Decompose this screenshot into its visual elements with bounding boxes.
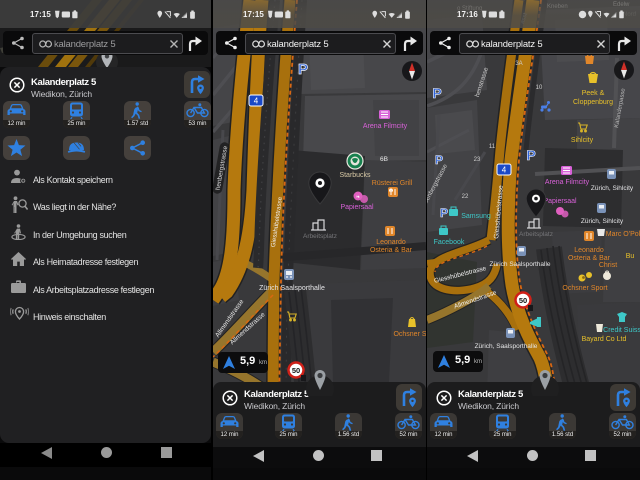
svg-text:Papiersaal: Papiersaal [543, 198, 577, 205]
svg-text:Christ: Christ [599, 262, 617, 269]
svg-text:11: 11 [489, 144, 496, 150]
svg-text:6B: 6B [380, 156, 388, 163]
svg-text:Facebook: Facebook [434, 239, 465, 246]
svg-text:50: 50 [292, 366, 300, 375]
svg-text:Marc O'Pol: Marc O'Pol [606, 231, 640, 238]
svg-text:Ochsner S: Ochsner S [393, 331, 426, 338]
svg-text:Zürich, Sihlcity: Zürich, Sihlcity [591, 185, 634, 192]
svg-text:4: 4 [254, 97, 259, 106]
svg-text:P: P [432, 85, 441, 101]
svg-text:Rüsterei Grill: Rüsterei Grill [372, 180, 413, 187]
svg-text:4: 4 [502, 166, 507, 175]
svg-text:Peek &: Peek & [582, 90, 605, 97]
svg-text:P: P [440, 206, 448, 220]
svg-text:Papiersaal: Papiersaal [340, 204, 374, 211]
svg-text:Cloppenburg: Cloppenburg [573, 99, 613, 106]
svg-text:P: P [435, 153, 443, 167]
svg-text:Osteria & Bar: Osteria & Bar [370, 247, 413, 254]
svg-text:Credit Suisse: Credit Suisse [603, 327, 640, 334]
svg-text:22: 22 [462, 194, 469, 200]
svg-text:23: 23 [474, 157, 481, 163]
svg-text:Arena Filmcity: Arena Filmcity [545, 179, 590, 186]
svg-text:Bayard Co Ltd: Bayard Co Ltd [582, 336, 627, 343]
svg-text:Starbucks: Starbucks [339, 172, 371, 179]
svg-text:Bu: Bu [626, 253, 635, 260]
svg-text:Arbeitsplatz: Arbeitsplatz [303, 233, 337, 240]
svg-text:Zürich Saalsporthalle: Zürich Saalsporthalle [489, 261, 550, 268]
svg-text:Sihlcity: Sihlcity [571, 137, 594, 144]
svg-text:P: P [298, 61, 308, 78]
svg-text:Zürich, Sihlcity: Zürich, Sihlcity [581, 218, 624, 225]
svg-text:Zürich Saalsporthalle: Zürich Saalsporthalle [259, 285, 325, 292]
svg-text:10: 10 [536, 85, 543, 91]
svg-text:P: P [526, 147, 535, 163]
svg-text:3A: 3A [515, 61, 522, 67]
svg-text:Arena Filmcity: Arena Filmcity [363, 123, 408, 130]
svg-text:Zürich, Saalsporthalle: Zürich, Saalsporthalle [475, 343, 538, 350]
svg-text:Ochsner Sport: Ochsner Sport [562, 285, 607, 292]
svg-text:50: 50 [519, 296, 527, 305]
svg-text:Samsung: Samsung [461, 213, 491, 220]
svg-text:Leonardo: Leonardo [376, 239, 406, 246]
svg-text:Leonardo: Leonardo [574, 247, 604, 254]
svg-text:Arbeitsplatz: Arbeitsplatz [519, 231, 553, 238]
svg-text:Osteria & Bar: Osteria & Bar [568, 255, 611, 262]
svg-text:❧: ❧ [356, 195, 361, 201]
